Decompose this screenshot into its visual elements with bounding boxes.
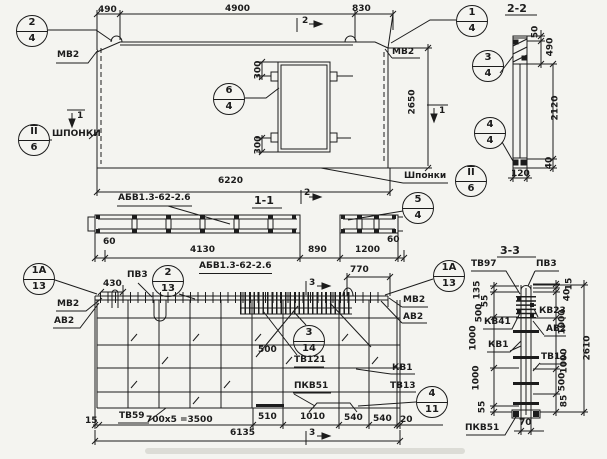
callout-bottom-num: 4 bbox=[475, 134, 505, 149]
elev-label-av2-right: АВ2 bbox=[403, 313, 423, 323]
callout-top-num: 1 bbox=[457, 6, 487, 22]
section11-dim-890: 890 bbox=[308, 246, 327, 256]
elev-section-mark-3-top: 3 bbox=[309, 279, 315, 289]
section33-dim-500-right: 500 bbox=[559, 373, 568, 392]
section-3-3-title: 3-3 bbox=[500, 245, 520, 256]
elev-dim-20: 20 bbox=[400, 416, 413, 426]
section-2-2-title: 2-2 bbox=[507, 3, 527, 14]
elev-dim-770: 770 bbox=[350, 266, 369, 276]
callout-bottom-num: 6 bbox=[19, 141, 49, 156]
elev-label-tv13: ТВ13 bbox=[390, 382, 416, 392]
plan-label-shponki-left: ШПОНКИ bbox=[52, 130, 101, 140]
callout-II-6-right: II 6 bbox=[455, 165, 487, 197]
section33-label-tv97: ТВ97 bbox=[471, 260, 497, 270]
elev-label-mv2-right: МВ2 bbox=[403, 296, 425, 306]
callout-4-11: 4 11 bbox=[416, 386, 448, 418]
plan-dim-6220: 6220 bbox=[218, 177, 243, 187]
section33-label-pkv51: ПКВ51 bbox=[465, 424, 499, 434]
section33-dim-1000-left-b: 1000 bbox=[473, 365, 482, 390]
section11-dim-60-left: 60 bbox=[103, 238, 116, 248]
callout-top-num: II bbox=[456, 166, 486, 182]
callout-1A-13-right: 1А 13 bbox=[433, 260, 465, 292]
plan-section-mark-1-left: 1 bbox=[77, 112, 83, 122]
section22-dim-40: 40 bbox=[546, 157, 555, 170]
section33-dim-40: 40 bbox=[564, 289, 573, 302]
section33-label-pv3: ПВ3 bbox=[536, 260, 557, 270]
scan-smudge bbox=[145, 448, 465, 454]
elev-label-tv59: ТВ59 bbox=[119, 412, 145, 422]
section33-dim-85: 85 bbox=[561, 395, 570, 408]
elev-dim-15: 15 bbox=[85, 417, 98, 427]
elev-label-abv: АБВ1.3-62-2.6 bbox=[199, 262, 272, 274]
plan-section-mark-2-mid: 2 bbox=[304, 189, 310, 199]
callout-top-num: 4 bbox=[417, 387, 447, 403]
callout-bottom-num: 4 bbox=[473, 67, 503, 82]
plan-view-lines bbox=[48, 10, 456, 220]
section22-dim-50: 50 bbox=[532, 26, 541, 39]
callout-bottom-num: 6 bbox=[456, 182, 486, 197]
callout-bottom-num: 4 bbox=[457, 22, 487, 37]
callout-3-14: 3 14 bbox=[293, 325, 325, 357]
section22-dim-2120: 2120 bbox=[552, 95, 561, 120]
callout-2-13: 2 13 bbox=[152, 265, 184, 297]
plan-section-mark-1-right: 1 bbox=[439, 107, 445, 117]
plan-section-mark-2-top: 2 bbox=[302, 17, 308, 27]
elev-dim-540-a: 540 bbox=[344, 414, 363, 424]
section11-dim-4130: 4130 bbox=[190, 246, 215, 256]
section22-dim-120: 120 bbox=[511, 170, 530, 180]
callout-bottom-num: 11 bbox=[417, 403, 447, 418]
section33-dim-1000-right-b: 1000 bbox=[561, 348, 570, 373]
callout-top-num: 4 bbox=[475, 118, 505, 134]
section33-dim-2610: 2610 bbox=[584, 335, 593, 360]
callout-bottom-num: 14 bbox=[294, 342, 324, 357]
callout-3-4: 3 4 bbox=[472, 50, 504, 82]
plan-dim-300-bottom: 300 bbox=[255, 136, 264, 155]
callout-top-num: 3 bbox=[294, 326, 324, 342]
section22-dim-490: 490 bbox=[547, 38, 556, 57]
section11-dim-1200: 1200 bbox=[355, 246, 380, 256]
plan-dim-490: 490 bbox=[98, 6, 117, 16]
callout-bottom-num: 13 bbox=[153, 282, 183, 297]
plan-label-shponki-right: Шпонки bbox=[404, 172, 446, 182]
callout-top-num: II bbox=[19, 125, 49, 141]
callout-bottom-num: 4 bbox=[17, 32, 47, 47]
callout-top-num: 6 bbox=[214, 84, 244, 100]
callout-top-num: 2 bbox=[17, 16, 47, 32]
section33-dim-70: 70 bbox=[519, 419, 532, 429]
elev-dim-510: 510 bbox=[258, 413, 277, 423]
section33-dim-1000-right-a: 1000 bbox=[559, 309, 568, 334]
plan-dim-4900: 4900 bbox=[225, 5, 250, 15]
callout-bottom-num: 4 bbox=[403, 209, 433, 224]
section33-dim-55-bottom: 55 bbox=[479, 401, 488, 414]
callout-5-4: 5 4 bbox=[402, 192, 434, 224]
plan-dim-2650: 2650 bbox=[409, 89, 418, 114]
callout-top-num: 3 bbox=[473, 51, 503, 67]
elev-dim-540-b: 540 bbox=[373, 415, 392, 425]
section-1-1-title: 1-1 bbox=[254, 195, 274, 206]
section11-label-abv: АБВ1.3-62-2.6 bbox=[118, 194, 191, 204]
elev-dim-700x5: 700х5 =3500 bbox=[146, 416, 213, 426]
elev-dim-6135: 6135 bbox=[230, 429, 255, 439]
plan-label-mv2-left: МВ2 bbox=[57, 51, 79, 61]
plan-label-mv2-right: МВ2 bbox=[392, 48, 414, 58]
elev-section-mark-3-bottom: 3 bbox=[309, 429, 315, 439]
callout-top-num: 5 bbox=[403, 193, 433, 209]
section33-dim-1000-left-a: 1000 bbox=[470, 325, 479, 350]
callout-4-4: 4 4 bbox=[474, 117, 506, 149]
elev-label-kv1: КВ1 bbox=[392, 364, 412, 374]
plan-dim-300-top: 300 bbox=[255, 61, 264, 80]
callout-bottom-num: 13 bbox=[24, 280, 54, 295]
callout-2-4: 2 4 bbox=[16, 15, 48, 47]
callout-1-4: 1 4 bbox=[456, 5, 488, 37]
section33-dim-500-left: 500 bbox=[476, 304, 485, 323]
elev-dim-500: 500 bbox=[258, 346, 277, 356]
callout-II-6-left: II 6 bbox=[18, 124, 50, 156]
callout-top-num: 2 bbox=[153, 266, 183, 282]
elev-dim-430: 430 bbox=[103, 280, 122, 290]
elev-label-tv121: ТВ121 bbox=[294, 356, 326, 366]
elev-label-mv2-left: МВ2 bbox=[57, 300, 79, 310]
callout-1A-13-left: 1А 13 bbox=[23, 263, 55, 295]
section33-label-kv1: КВ1 bbox=[488, 341, 508, 351]
elev-label-av2-left: АВ2 bbox=[54, 317, 74, 327]
callout-bottom-num: 13 bbox=[434, 277, 464, 292]
elev-dim-1010: 1010 bbox=[300, 413, 325, 423]
callout-top-num: 1А bbox=[434, 261, 464, 277]
elev-label-pv3: ПВ3 bbox=[127, 271, 148, 281]
section33-label-kv41: КВ41 bbox=[484, 318, 511, 328]
callout-6-4: 6 4 bbox=[213, 83, 245, 115]
elev-label-pkv51: ПКВ51 bbox=[294, 382, 328, 392]
callout-bottom-num: 4 bbox=[214, 100, 244, 115]
plan-dim-830: 830 bbox=[352, 5, 371, 15]
drawing-sheet: 490 4900 830 МВ2 МВ2 2 2 1 1 300 300 ШПО… bbox=[0, 0, 607, 459]
section11-dim-60-right: 60 bbox=[387, 236, 400, 246]
callout-top-num: 1А bbox=[24, 264, 54, 280]
